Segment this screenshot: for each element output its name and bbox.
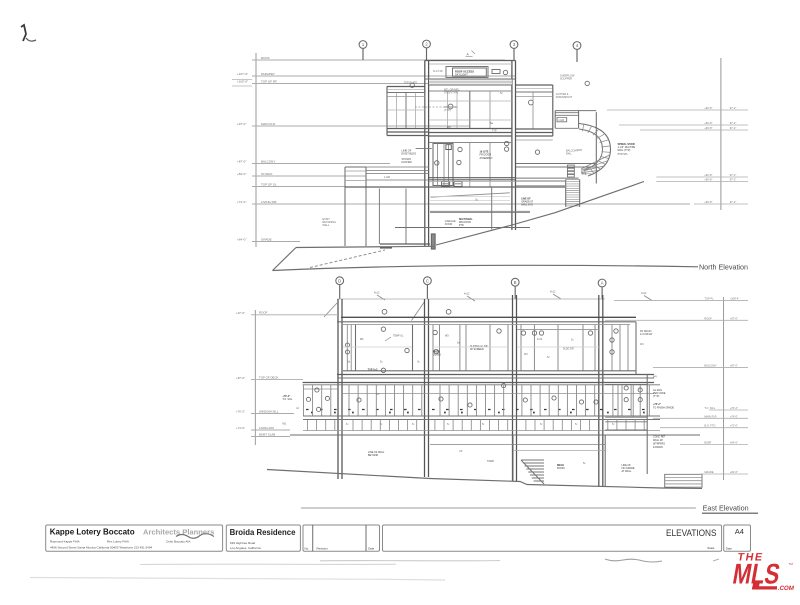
svg-text:BSMT: BSMT: [704, 441, 712, 445]
svg-text:C: C: [426, 278, 429, 283]
svg-text:& DRAIN: & DRAIN: [653, 446, 663, 449]
svg-text:W2: W2: [447, 126, 451, 129]
svg-text:+97'-0": +97'-0": [237, 122, 246, 126]
svg-text:Scale: Scale: [707, 546, 715, 550]
svg-text:+76'-2": +76'-2": [730, 406, 738, 410]
svg-text:4456 Second Street Santa Monic: 4456 Second Street Santa Monica Californ…: [50, 546, 153, 550]
svg-text:.COM: .COM: [777, 585, 794, 592]
svg-text:4x12: 4x12: [641, 292, 647, 295]
svg-text:WALL: WALL: [323, 224, 330, 227]
svg-text:PARAPET: PARAPET: [261, 72, 275, 76]
svg-text:GRADE: GRADE: [261, 237, 272, 241]
svg-text:ROOF: ROOF: [259, 311, 268, 315]
svg-text:+84'-0": +84'-0": [237, 172, 246, 176]
svg-text:BEYOND: BEYOND: [368, 454, 378, 457]
svg-text:4x12: 4x12: [464, 293, 470, 296]
svg-text:D: D: [338, 278, 341, 283]
svg-text:97'-2": 97'-2": [730, 173, 737, 177]
svg-text:1 HR: 1 HR: [558, 118, 564, 122]
svg-text:FLAT RF: FLAT RF: [433, 70, 443, 73]
svg-text:DOWNSPOUT: DOWNSPOUT: [556, 96, 573, 99]
svg-text:LIVING RM: LIVING RM: [261, 200, 277, 204]
svg-text:+96'-8": +96'-8": [704, 178, 712, 182]
svg-text:+74'-0": +74'-0": [730, 414, 738, 418]
svg-text:KIT: KIT: [376, 393, 380, 396]
svg-text:& OVRFLW: & OVRFLW: [640, 333, 653, 336]
svg-text:GLASS: GLASS: [433, 354, 441, 357]
svg-text:WALL BYD: WALL BYD: [521, 204, 533, 207]
svg-text:+87'-0": +87'-0": [730, 363, 738, 367]
svg-text:A4: A4: [735, 527, 744, 536]
svg-text:Revision: Revision: [317, 547, 328, 551]
svg-text:+76'-2": +76'-2": [236, 410, 245, 414]
svg-text:A: A: [601, 281, 604, 286]
svg-text:North Elevation: North Elevation: [699, 263, 748, 272]
svg-text:DOOR: DOOR: [445, 223, 453, 226]
svg-text:AT WALL: AT WALL: [622, 470, 633, 473]
svg-text:STAIR: STAIR: [487, 460, 494, 463]
svg-text:TEMP GL: TEMP GL: [393, 335, 404, 338]
svg-text:WINDOW SILL: WINDOW SILL: [259, 409, 279, 413]
svg-text:TOP OF SL: TOP OF SL: [261, 182, 277, 186]
svg-text:T.O. SILL: T.O. SILL: [282, 398, 293, 401]
svg-text:LIVING RM: LIVING RM: [259, 426, 274, 430]
svg-text:+72'-0": +72'-0": [730, 424, 738, 428]
svg-text:SKYLIGHT: SKYLIGHT: [455, 73, 468, 77]
svg-text:MAIN FLR: MAIN FLR: [261, 122, 276, 126]
svg-text:RAIL: RAIL: [566, 153, 572, 156]
svg-text:+62'-0": +62'-0": [730, 470, 738, 474]
svg-text:East Elevation: East Elevation: [703, 504, 749, 513]
svg-text:W/ SCREEN: W/ SCREEN: [470, 348, 484, 351]
svg-text:97'-2": 97'-2": [730, 200, 737, 204]
svg-text:STUDIO: STUDIO: [261, 172, 273, 176]
svg-text:TOP OF RF: TOP OF RF: [261, 79, 277, 83]
svg-text:+87'-0": +87'-0": [236, 376, 245, 380]
svg-text:+74'-0": +74'-0": [236, 426, 245, 430]
svg-text:PTD: PTD: [459, 224, 464, 227]
svg-text:+96'-8": +96'-8": [704, 173, 712, 177]
svg-text:EXIST BLDG: EXIST BLDG: [402, 153, 417, 156]
svg-text:1 HR: 1 HR: [384, 175, 390, 179]
svg-text:+74'-0": +74'-0": [237, 200, 246, 204]
svg-text:B.O. FTG: B.O. FTG: [704, 424, 715, 428]
svg-text:Date: Date: [368, 547, 374, 551]
svg-text:BSMT SLAB: BSMT SLAB: [259, 432, 275, 436]
svg-text:PTD STL: PTD STL: [618, 153, 629, 156]
svg-text:4x10: 4x10: [537, 338, 543, 341]
svg-text:+96'-8": +96'-8": [704, 121, 712, 125]
svg-text:+97'-0": +97'-0": [236, 311, 245, 315]
svg-text:T.O. SILL: T.O. SILL: [704, 406, 715, 410]
svg-text:TYP: TYP: [492, 130, 497, 133]
svg-text:4x12: 4x12: [550, 291, 556, 294]
svg-text:Los Angeles, California: Los Angeles, California: [230, 546, 261, 550]
svg-text:UP: UP: [459, 450, 463, 453]
svg-text:No.: No.: [305, 547, 310, 551]
svg-text:DASHED: DASHED: [402, 161, 413, 164]
svg-text:ELEVATIONS: ELEVATIONS: [666, 528, 717, 538]
svg-text:TOP PL: TOP PL: [704, 296, 714, 300]
svg-text:+64'-6": +64'-6": [730, 441, 738, 445]
svg-text:B: B: [514, 280, 517, 285]
svg-text:ROOM: ROOM: [557, 467, 564, 470]
svg-text:+108'-4": +108'-4": [730, 296, 740, 300]
svg-text:97'-2": 97'-2": [730, 121, 737, 125]
svg-text:+96'-8": +96'-8": [704, 126, 712, 130]
svg-text:+96'-8": +96'-8": [704, 106, 712, 110]
svg-text:639 Hightree Road: 639 Hightree Road: [230, 541, 256, 545]
svg-text:ASSEMBLY: ASSEMBLY: [480, 157, 494, 160]
svg-text:97'-2": 97'-2": [730, 126, 737, 130]
svg-text:+97'-0": +97'-0": [730, 316, 738, 320]
svg-text:ROOF: ROOF: [704, 316, 712, 320]
svg-text:STOP (TYP): STOP (TYP): [444, 91, 458, 94]
svg-text:Rex Lotery FAIA: Rex Lotery FAIA: [107, 539, 129, 543]
svg-text:Cebo Boccato AIA: Cebo Boccato AIA: [166, 539, 190, 543]
svg-text:MAIN FLR: MAIN FLR: [704, 414, 716, 418]
svg-text:+64'-0": +64'-0": [237, 238, 246, 242]
svg-text:TO FINISH GRADE: TO FINISH GRADE: [653, 407, 674, 410]
svg-text:Date: Date: [726, 546, 732, 550]
svg-text:97'-2": 97'-2": [730, 106, 737, 110]
svg-text:TM: TM: [789, 562, 794, 566]
svg-text:RAIL (TYP): RAIL (TYP): [618, 149, 631, 152]
svg-text:Broida Residence: Broida Residence: [230, 528, 297, 537]
svg-text:BALCONY: BALCONY: [704, 363, 717, 367]
svg-text:GRADE: GRADE: [704, 470, 713, 474]
svg-text:(TYP): (TYP): [653, 395, 659, 398]
svg-text:(TYP): (TYP): [444, 109, 451, 112]
svg-text:TOP OF DECK: TOP OF DECK: [259, 375, 279, 379]
svg-text:4x12: 4x12: [374, 292, 380, 295]
svg-text:Kappe Lotery Boccato: Kappe Lotery Boccato: [50, 527, 135, 536]
svg-text:Raymond Kappe FAIA: Raymond Kappe FAIA: [50, 539, 80, 543]
svg-text:BALCONY: BALCONY: [261, 159, 275, 163]
svg-text:SCUPPER: SCUPPER: [560, 78, 572, 81]
svg-text:+96'-8": +96'-8": [704, 200, 712, 204]
svg-text:ROOF: ROOF: [261, 56, 270, 60]
svg-text:+105'-6": +105'-6": [237, 80, 248, 84]
svg-text:+107'-0": +107'-0": [237, 72, 248, 76]
svg-text:SLDG DR: SLDG DR: [563, 348, 574, 351]
svg-text:+87'-0": +87'-0": [237, 160, 246, 164]
svg-text:97'-2": 97'-2": [730, 178, 737, 182]
